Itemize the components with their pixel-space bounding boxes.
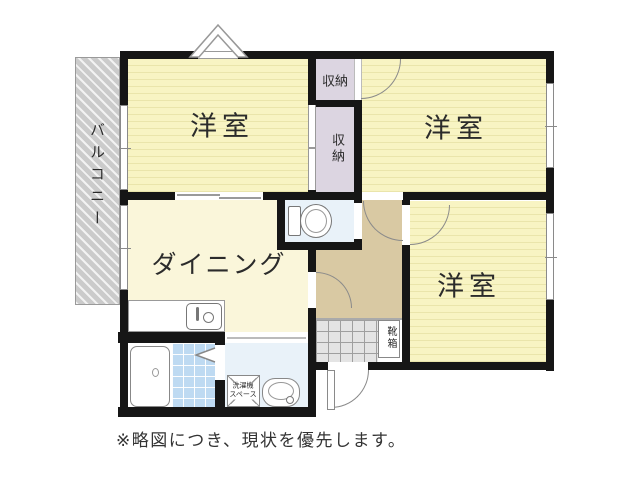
- dining-label: ダイニング: [151, 245, 286, 281]
- dining-hall-door-opening: [308, 272, 316, 308]
- wall-bottom-right: [400, 362, 554, 370]
- washer-line2: スペース: [229, 391, 256, 398]
- closet-top-label: 収納: [322, 71, 348, 90]
- closet-sliding-door: [308, 105, 316, 190]
- bathtub-icon: [130, 346, 170, 407]
- window-dining-left: [120, 205, 128, 290]
- wall-bedroom2-bottom: [403, 192, 554, 200]
- wall-top: [120, 51, 554, 59]
- bedroom3-door-opening: [402, 205, 410, 245]
- washbasin-faucet: [286, 396, 294, 404]
- toilet-bowl-inner: [305, 209, 327, 233]
- bay-window-opening: [198, 51, 238, 59]
- window-bedroom1-left: [120, 105, 128, 190]
- wall-toilet-bottom: [277, 242, 362, 250]
- bathroom-tiles: [172, 343, 215, 407]
- toilet-door-opening: [354, 203, 362, 239]
- floor-plan: バルコニー: [0, 0, 640, 480]
- window-bedroom2-right: [546, 83, 554, 168]
- washer-line1: 洗濯機: [232, 383, 253, 390]
- wall-mid-band: [263, 192, 362, 200]
- dining-washroom-opening: [225, 332, 308, 343]
- closet-side-label: 収納: [328, 133, 347, 165]
- sliding-door-bedroom1-dining: [175, 192, 263, 200]
- kitchen-faucet-pin: [196, 307, 199, 321]
- wall-bedroom1-bottom: [120, 192, 175, 200]
- door-arc-entrance: [331, 370, 369, 408]
- window-bedroom3-right: [546, 213, 554, 300]
- wall-bottom-entrance-r: [368, 362, 404, 370]
- bedroom1-label: 洋室: [190, 105, 254, 144]
- wall-kitchen-bottom: [118, 332, 225, 343]
- entrance-door-leaf: [327, 370, 335, 410]
- wall-washroom-right: [308, 322, 316, 417]
- bathtub-drain: [152, 368, 159, 377]
- entrance-door-opening: [328, 362, 368, 370]
- note-text: ※略図につき、現状を優先します。: [116, 426, 406, 451]
- bedroom2-label: 洋室: [424, 107, 488, 146]
- kitchen-faucet-icon: [203, 312, 214, 323]
- balcony-label: バルコニー: [86, 122, 107, 232]
- bath-door-opening: [215, 345, 225, 380]
- bedroom2-door-opening: [363, 192, 403, 200]
- washer-space-label: 洗濯機 スペース: [228, 383, 257, 400]
- entrance-tile-floor: [316, 320, 378, 362]
- bedroom3-label: 洋室: [437, 265, 501, 304]
- shoe-box-label: 靴箱: [383, 326, 398, 350]
- wall-closet-divider: [308, 100, 362, 107]
